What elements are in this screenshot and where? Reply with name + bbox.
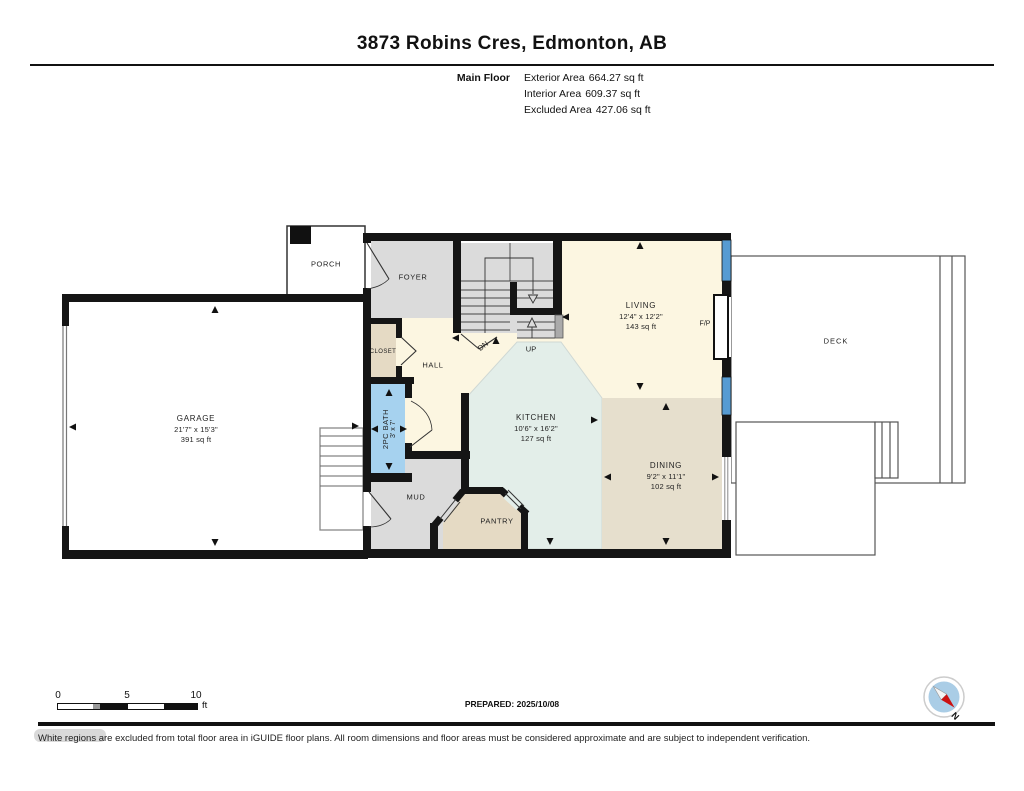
closet-label: CLOSET [370,349,396,355]
kitchen-label: KITCHEN 10'6" x 16'2" 127 sq ft [514,413,558,443]
garage-stairs [320,428,363,530]
floorplan-page: 3873 Robins Cres, Edmonton, AB Main Floo… [0,0,1024,791]
floorplan-svg [0,0,1024,791]
porch-post [290,226,311,244]
porch-label: PORCH [311,260,341,269]
pantry-label: PANTRY [480,517,513,526]
hall-label: HALL [422,361,443,370]
up-stair-floor [517,315,557,338]
dining-label: DINING 9'2" x 11'1" 102 sq ft [647,461,686,491]
stairs-up-label: UP [526,345,536,354]
prepared-date: PREPARED: 2025/10/08 [412,699,612,709]
garage-door [63,326,67,526]
bath-label: 2PC BATH 3' x 7' [381,409,397,449]
scale-tick-0: 0 [55,690,61,701]
deck-structure [731,256,965,555]
scale-tick-10: 10 [190,690,201,701]
dining-slider [722,457,731,520]
fireplace [714,295,731,359]
deck-label: DECK [824,337,849,346]
foyer-label: FOYER [399,273,428,282]
scale-unit: ft [202,700,207,711]
disclaimer-text: White regions are excluded from total fl… [38,733,998,744]
scale-bar [57,703,198,710]
living-window-lower [722,377,731,415]
garage-label: GARAGE 21'7" x 15'3" 391 sq ft [174,414,218,444]
mud-label: MUD [407,493,426,502]
living-label: LIVING 12'4" x 12'2" 143 sq ft [619,301,663,331]
footer-divider [38,722,995,726]
scale-tick-5: 5 [124,690,130,701]
fireplace-label: F/P [700,321,711,328]
room-fills [371,241,722,549]
stair-rail [555,315,563,338]
living-window-upper [722,240,731,281]
